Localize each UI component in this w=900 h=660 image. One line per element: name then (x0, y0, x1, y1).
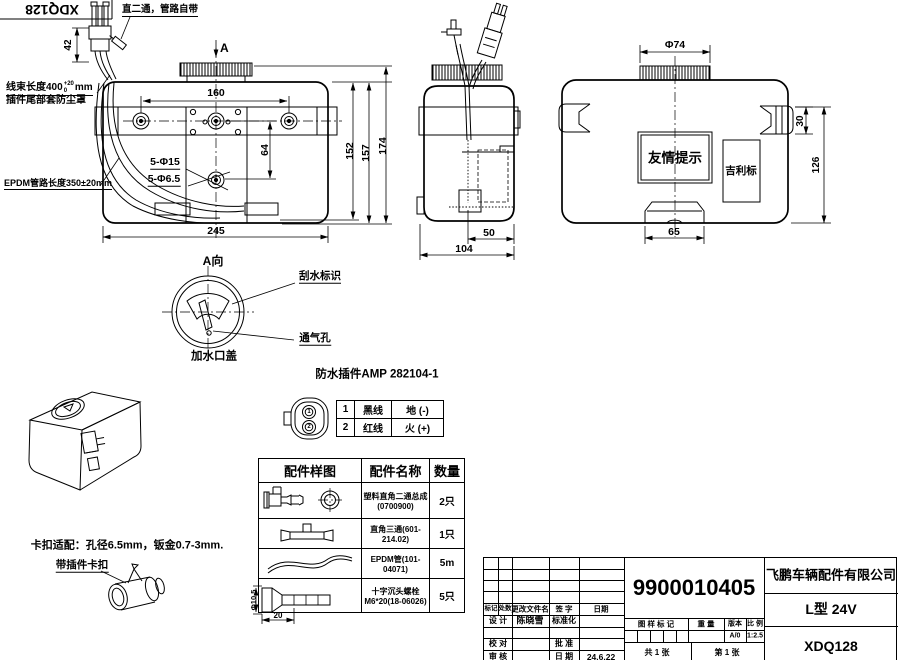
amp-pin2-mark: 2 (307, 424, 310, 430)
wiper-mark-label: 刮水标识 (299, 271, 341, 284)
harness-tol-dn: 0 (64, 88, 74, 95)
section-mark-a: A (220, 42, 229, 54)
part-name-line1: 塑料直角二通总成 (362, 491, 429, 502)
parts-header-name: 配件名称 (362, 459, 430, 483)
parts-qty-cell: 2只 (430, 483, 465, 519)
tb-standardize-label: 标准化 (552, 617, 576, 625)
tb-scale-hdr: 比 例 (747, 621, 763, 628)
dim-50: 50 (483, 228, 495, 239)
vent-hole-label: 通气孔 (299, 333, 331, 346)
clip-3d-art (101, 564, 166, 612)
tb-h-mark: 标记 (485, 606, 498, 613)
tb-weight-hdr: 重 量 (697, 620, 714, 628)
dim-42: 42 (64, 39, 74, 50)
screw-dia-dim: Φ10.5 (250, 590, 258, 611)
front-view-art (72, 2, 392, 243)
a-view-art (162, 266, 295, 358)
brand-box-label: 吉利标 (725, 166, 757, 177)
parts-name-cell: 塑料直角二通总成 (0700900) (362, 483, 430, 519)
tb-h-date: 日期 (594, 605, 609, 613)
part-name-line2: M6*20(18-06026) (362, 597, 429, 606)
tb-version-value: A/0 (730, 633, 741, 640)
harness-note-unit: mm (75, 83, 93, 93)
holes-5x15-label: 5-Φ15 (150, 157, 180, 170)
pin-row: 1 黑线 地 (-) (337, 401, 444, 419)
tb-model: L型 24V (805, 602, 856, 616)
parts-row: EPDM管(101-04071) 5m (259, 549, 465, 579)
dim-174: 174 (378, 137, 389, 155)
tb-sheet-total: 共 1 张 (645, 649, 670, 657)
harness-note-prefix: 线束长度400 (6, 83, 63, 93)
tb-design-label: 设 计 (489, 617, 507, 625)
parts-row: 十字沉头螺栓 M6*20(18-06026) 5只 (259, 579, 465, 613)
dim-64: 64 (260, 144, 271, 156)
parts-sample-cell (259, 519, 362, 549)
tb-scale-value: 1:2.5 (747, 633, 763, 640)
tb-part-number: 9900010405 (633, 577, 755, 599)
harness-tol-up: +20 (64, 81, 74, 88)
engineering-drawing-sheet: { "corner_box": { "code": "XDQ128" }, "n… (0, 0, 900, 660)
pin-polarity: 火 (+) (392, 419, 444, 437)
dim-cap-dia: Φ74 (665, 40, 685, 51)
dim-245: 245 (207, 226, 225, 237)
parts-qty-cell: 5只 (430, 579, 465, 613)
tb-approve-label: 批 准 (555, 640, 573, 648)
clip-fit-note: 卡扣适配：孔径6.5mm，钣金0.7-3mm. (31, 541, 224, 552)
parts-table: 配件样图 配件名称 数量 塑料直角二通总成 (0700900) 2只 直角三通(… (258, 458, 465, 613)
tb-drawing-no: XDQ128 (804, 639, 858, 653)
part-name-line1: 十字沉头螺栓 (362, 586, 429, 597)
parts-row: 直角三通(601-214.02) 1只 (259, 519, 465, 549)
tank-3d-art (29, 392, 141, 490)
amp-pin-table: 1 黑线 地 (-) 2 红线 火 (+) (336, 400, 444, 437)
dim-157: 157 (361, 144, 372, 162)
pin-no: 2 (337, 419, 355, 437)
dim-104: 104 (455, 244, 473, 255)
parts-name-cell: 直角三通(601-214.02) (362, 519, 430, 549)
a-view-title: A向 (203, 255, 224, 267)
part-name-line2: (0700900) (362, 502, 429, 511)
dim-65: 65 (668, 227, 680, 238)
amp-title: 防水插件AMP 282104-1 (315, 369, 438, 381)
fitting-note: 直二通，管路自带 (122, 5, 198, 17)
parts-header-sample: 配件样图 (259, 459, 362, 483)
notice-box-label: 友情提示 (648, 151, 702, 165)
parts-name-cell: 十字沉头螺栓 M6*20(18-06026) (362, 579, 430, 613)
parts-sample-cell (259, 579, 362, 613)
amp-pin1-mark: 1 (307, 409, 310, 415)
parts-qty-cell: 5m (430, 549, 465, 579)
tb-sheet-no: 第 1 张 (715, 649, 740, 657)
pin-row: 2 红线 火 (+) (337, 419, 444, 437)
harness-note-tolerance: +20 0 (64, 81, 74, 94)
pin-wire: 红线 (355, 419, 392, 437)
harness-note: 线束长度400 +20 0 mm (6, 81, 93, 96)
filler-cap-label: 加水口盖 (191, 351, 237, 363)
dim-152: 152 (345, 142, 356, 160)
pin-no: 1 (337, 401, 355, 419)
pin-wire: 黑线 (355, 401, 392, 419)
tb-mark-hdr: 图 样 标 记 (638, 620, 674, 628)
clip-label: 带插件卡扣 (56, 560, 109, 573)
tb-check-label: 校 对 (489, 640, 507, 648)
rear-view-art (559, 45, 831, 244)
tb-company-name: 飞鹏车辆配件有限公司 (766, 569, 896, 582)
tb-h-sign: 签 字 (555, 605, 572, 613)
parts-sample-cell (259, 483, 362, 519)
parts-row: 塑料直角二通总成 (0700900) 2只 (259, 483, 465, 519)
parts-name-cell: EPDM管(101-04071) (362, 549, 430, 579)
tb-date-label: 日 期 (555, 653, 573, 660)
holes-5x65-label: 5-Φ6.5 (148, 174, 181, 187)
parts-sample-cell (259, 549, 362, 579)
corner-box-code: XDQ128 (25, 3, 79, 17)
dust-cap-note: 插件尾部套防尘罩 (6, 96, 86, 106)
epdm-note: EPDM管路长度350±20mm (4, 179, 112, 190)
dim-160: 160 (207, 88, 225, 99)
parts-header-qty: 数量 (430, 459, 465, 483)
amp-connector-art (284, 398, 328, 439)
title-block: 标记 处数 更改文件名 签 字 日期 设 计 陈晓雪 标准化 校 对 批 准 审… (483, 557, 897, 660)
tb-h-file: 更改文件名 (511, 605, 549, 613)
side-view-art (417, 2, 520, 260)
parts-qty-cell: 1只 (430, 519, 465, 549)
tb-date-value: 24.6.22 (587, 653, 615, 660)
dim-126: 126 (812, 157, 822, 174)
tb-h-count: 处数 (499, 606, 512, 613)
dim-30: 30 (796, 115, 806, 126)
tb-version-hdr: 版本 (728, 621, 742, 628)
tb-review-label: 审 核 (489, 653, 507, 660)
parts-header-row: 配件样图 配件名称 数量 (259, 459, 465, 483)
tb-designer-name: 陈晓雪 (516, 617, 543, 626)
pin-polarity: 地 (-) (392, 401, 444, 419)
